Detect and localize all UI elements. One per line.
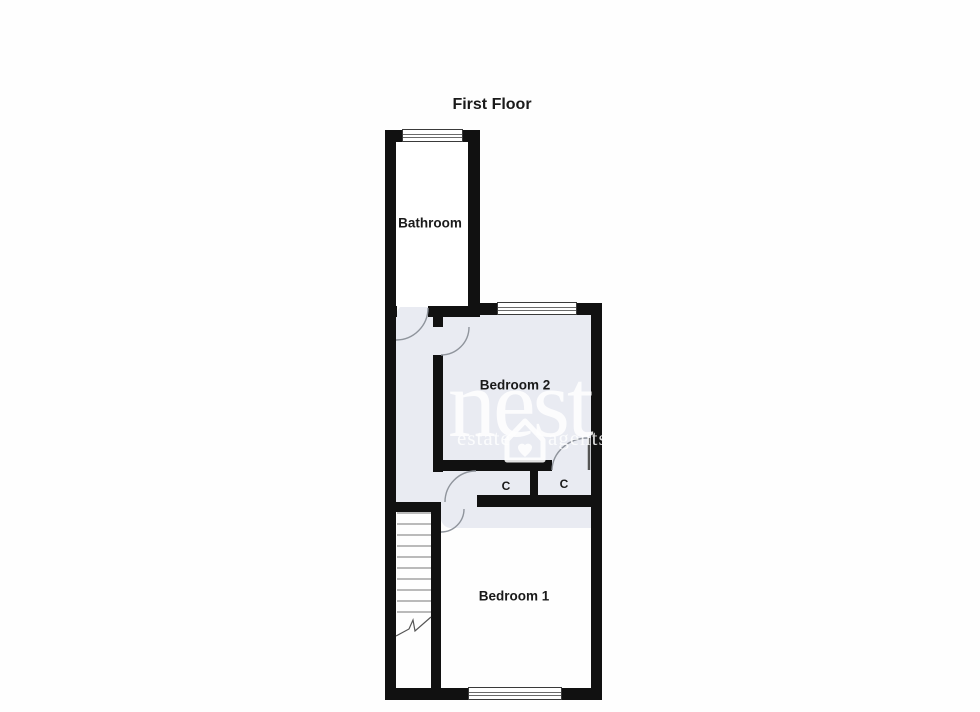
bathroom-label: Bathroom (398, 216, 462, 231)
closet-right-label: C (560, 477, 569, 491)
door-arc-closet-left (445, 471, 476, 502)
stairs-break-line (396, 617, 431, 636)
bedroom1-label: Bedroom 1 (479, 589, 550, 604)
door-arc-bedroom1 (441, 509, 464, 532)
bedroom2-label: Bedroom 2 (480, 378, 551, 393)
door-arc-bathroom (396, 308, 428, 340)
closet-left-label: C (502, 479, 511, 493)
page-title: First Floor (452, 96, 531, 114)
watermark-agents: agents (548, 426, 608, 451)
stairs (396, 513, 431, 636)
house-heart-icon (502, 413, 548, 465)
floor-plan-canvas: First Floor (0, 0, 980, 712)
